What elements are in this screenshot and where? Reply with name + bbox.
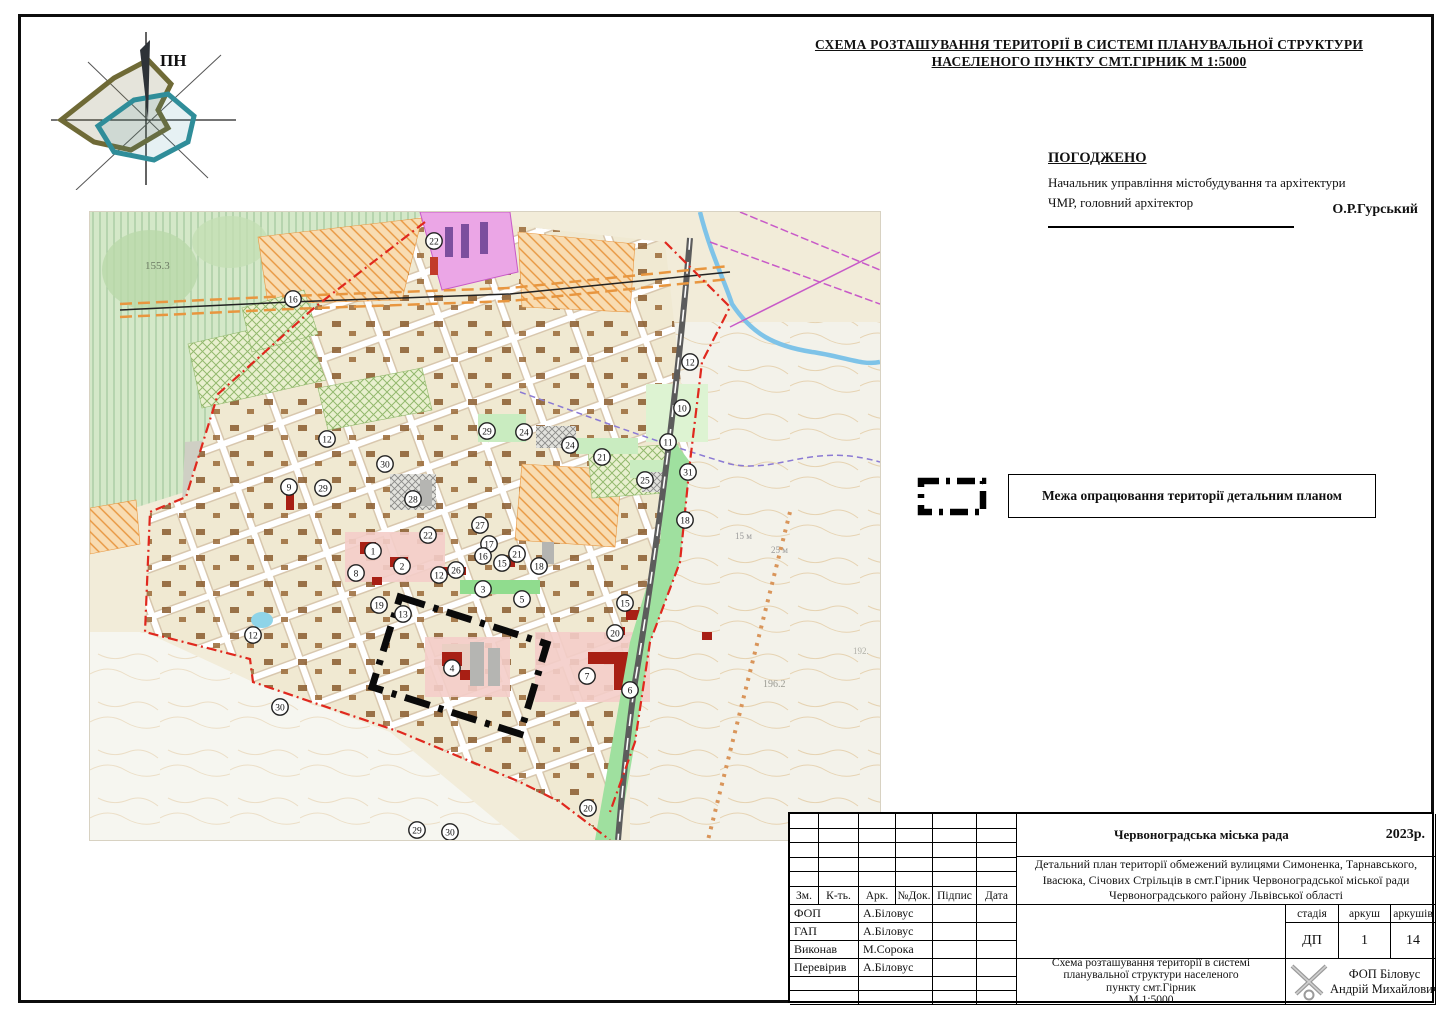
map-marker-number: 12 xyxy=(248,631,258,641)
empty-cell xyxy=(933,977,977,991)
stage-header: стадія xyxy=(1286,905,1339,923)
empty-cell xyxy=(977,977,1017,991)
map-marker-number: 30 xyxy=(275,703,285,713)
pond xyxy=(251,612,273,628)
sheet-title-line4: М 1:5000 xyxy=(1128,994,1173,1005)
map-marker-number: 29 xyxy=(318,484,328,494)
park-strip xyxy=(460,580,540,594)
role-1-date xyxy=(977,923,1017,941)
map-marker-number: 29 xyxy=(412,826,422,836)
col-ark: Арк. xyxy=(859,887,896,905)
boundary-legend-label: Межа опрацювання території детальним пла… xyxy=(1008,474,1376,518)
role-0-date xyxy=(977,905,1017,923)
map-marker-number: 24 xyxy=(565,441,575,451)
map-text-label: 15 м xyxy=(735,531,752,541)
map-marker-number: 28 xyxy=(408,495,418,505)
year: 2023р. xyxy=(1386,827,1435,843)
stage-value: ДП xyxy=(1286,923,1339,959)
company-line2: Андрій Михайлович xyxy=(1330,982,1436,997)
approval-heading: ПОГОДЖЕНО xyxy=(1048,150,1418,167)
boundary-legend-symbol xyxy=(915,476,989,518)
map-marker-number: 1 xyxy=(371,547,376,557)
page-title-line2: НАСЕЛЕНОГО ПУНКТУ СМТ.ГІРНИК М 1:5000 xyxy=(758,53,1420,70)
company-logo-icon xyxy=(1288,962,1330,1002)
map-marker-number: 18 xyxy=(534,562,544,572)
sheet-title-line2: планувальної структури населеного xyxy=(1063,969,1238,982)
role-3-name: А.Біловус xyxy=(859,959,933,977)
org-name: Червоноградська міська рада xyxy=(1017,827,1386,843)
revision-grid xyxy=(790,814,1017,887)
project-description: Детальний план території обмежений вулиц… xyxy=(1017,857,1436,905)
map-marker-number: 7 xyxy=(585,672,590,682)
col-pidpys: Підпис xyxy=(933,887,977,905)
col-data: Дата xyxy=(977,887,1017,905)
map-marker-number: 21 xyxy=(512,550,522,560)
forest-blob xyxy=(192,216,268,268)
map-marker-number: 2 xyxy=(400,562,405,572)
purple-building xyxy=(461,224,469,258)
empty-cell xyxy=(977,991,1017,1005)
map-marker-number: 22 xyxy=(429,237,439,247)
map-marker-number: 4 xyxy=(450,664,455,674)
map-marker-number: 30 xyxy=(380,460,390,470)
map-marker-number: 22 xyxy=(423,531,433,541)
map-marker-number: 12 xyxy=(322,435,332,445)
org-cell: Червоноградська міська рада 2023р. xyxy=(1017,814,1436,857)
sheets-total: 14 xyxy=(1391,923,1436,959)
map-marker-number: 6 xyxy=(628,686,633,696)
sheet-title-cell: Схема розташування території в системі п… xyxy=(1017,959,1286,1005)
role-3: Перевірив xyxy=(790,959,859,977)
empty-cell xyxy=(859,991,933,1005)
map-marker-number: 30 xyxy=(445,828,455,838)
role-3-sign xyxy=(933,959,977,977)
map-marker-number: 12 xyxy=(685,358,695,368)
sheet-title-line1: Схема розташування території в системі xyxy=(1052,959,1250,969)
company-name: ФОП Біловус Андрій Михайлович xyxy=(1330,967,1436,997)
map-marker-number: 18 xyxy=(680,516,690,526)
map-marker-number: 16 xyxy=(288,295,298,305)
map-marker-number: 3 xyxy=(481,585,486,595)
map-text-label: 196.2 xyxy=(763,679,786,690)
map-marker-number: 21 xyxy=(597,453,607,463)
title-block: Зм. К-ть. Арк. №Док. Підпис Дата ФОП А.Б… xyxy=(788,812,1434,1003)
role-1: ГАП xyxy=(790,923,859,941)
empty-cell xyxy=(859,977,933,991)
project-line3: Червоноградського району Львівської обла… xyxy=(1109,888,1343,904)
map-marker-number: 13 xyxy=(398,610,408,620)
map-marker-number: 15 xyxy=(497,559,507,569)
map-marker-number: 25 xyxy=(640,476,650,486)
company-line1: ФОП Біловус xyxy=(1330,967,1436,982)
map-marker-number: 27 xyxy=(475,521,485,531)
sheet-header: аркуш xyxy=(1339,905,1391,923)
map-marker-number: 12 xyxy=(434,571,444,581)
approval-line1: Начальник управління містобудування та а… xyxy=(1048,173,1418,193)
site-plan-map: 155.315 м25 м192.196.2 22161210112924242… xyxy=(90,212,880,840)
page-title-line1: СХЕМА РОЗТАШУВАННЯ ТЕРИТОРІЇ В СИСТЕМІ П… xyxy=(758,36,1420,53)
col-zm: Зм. xyxy=(790,887,819,905)
empty-cell xyxy=(790,991,859,1005)
role-1-name: А.Біловус xyxy=(859,923,933,941)
map-marker-number: 26 xyxy=(451,566,461,576)
map-marker-number: 11 xyxy=(663,438,672,448)
sheet-number: 1 xyxy=(1339,923,1391,959)
sheets-header: аркушів xyxy=(1391,905,1436,923)
map-marker-number: 16 xyxy=(478,552,488,562)
map-marker-number: 20 xyxy=(583,804,593,814)
map-marker-number: 29 xyxy=(482,427,492,437)
map-marker-number: 19 xyxy=(374,601,384,611)
map-text-label: 25 м xyxy=(771,545,788,555)
role-2-sign xyxy=(933,941,977,959)
role-0-sign xyxy=(933,905,977,923)
signature-line xyxy=(1048,226,1294,228)
sheet-title-line3: пункту смт.Гірник xyxy=(1106,982,1196,995)
map-text-label: 192. xyxy=(853,646,869,656)
approval-signatory: О.Р.Гурський xyxy=(1286,202,1418,218)
approval-block: ПОГОДЖЕНО Начальник управління містобуду… xyxy=(1048,150,1418,213)
company-cell: ФОП Біловус Андрій Михайлович xyxy=(1286,959,1436,1005)
orange-zone xyxy=(518,232,635,312)
map-marker-number: 5 xyxy=(520,595,525,605)
map-marker-number: 24 xyxy=(519,428,529,438)
map-marker-number: 8 xyxy=(354,569,359,579)
north-label: ПН xyxy=(160,51,186,70)
col-ndok: №Док. xyxy=(896,887,933,905)
role-0-name: А.Біловус xyxy=(859,905,933,923)
purple-building xyxy=(480,222,488,254)
map-marker-number: 9 xyxy=(287,483,292,493)
role-2: Виконав xyxy=(790,941,859,959)
role-1-sign xyxy=(933,923,977,941)
red-building xyxy=(430,257,438,275)
page-title: СХЕМА РОЗТАШУВАННЯ ТЕРИТОРІЇ В СИСТЕМІ П… xyxy=(758,36,1420,70)
empty-cell xyxy=(933,991,977,1005)
project-line2: Івасюка, Січових Стрільців в смт.Гірник … xyxy=(1043,873,1410,889)
role-2-date xyxy=(977,941,1017,959)
role-0: ФОП xyxy=(790,905,859,923)
col-kt: К-ть. xyxy=(819,887,859,905)
drawing-sheet: ПН СХЕМА РОЗТАШУВАННЯ ТЕРИТОРІЇ В СИСТЕМ… xyxy=(0,0,1453,1032)
role-3-date xyxy=(977,959,1017,977)
map-marker-number: 20 xyxy=(610,629,620,639)
north-wind-rose: ПН xyxy=(36,20,236,190)
project-line1: Детальний план території обмежений вулиц… xyxy=(1035,857,1417,873)
empty-cell xyxy=(790,977,859,991)
purple-building xyxy=(445,227,453,257)
map-marker-number: 15 xyxy=(620,599,630,609)
empty-center-cell xyxy=(1017,905,1286,959)
map-marker-number: 10 xyxy=(677,404,687,414)
role-2-name: М.Сорока xyxy=(859,941,933,959)
map-marker-number: 31 xyxy=(683,468,693,478)
map-text-label: 155.3 xyxy=(145,260,170,272)
